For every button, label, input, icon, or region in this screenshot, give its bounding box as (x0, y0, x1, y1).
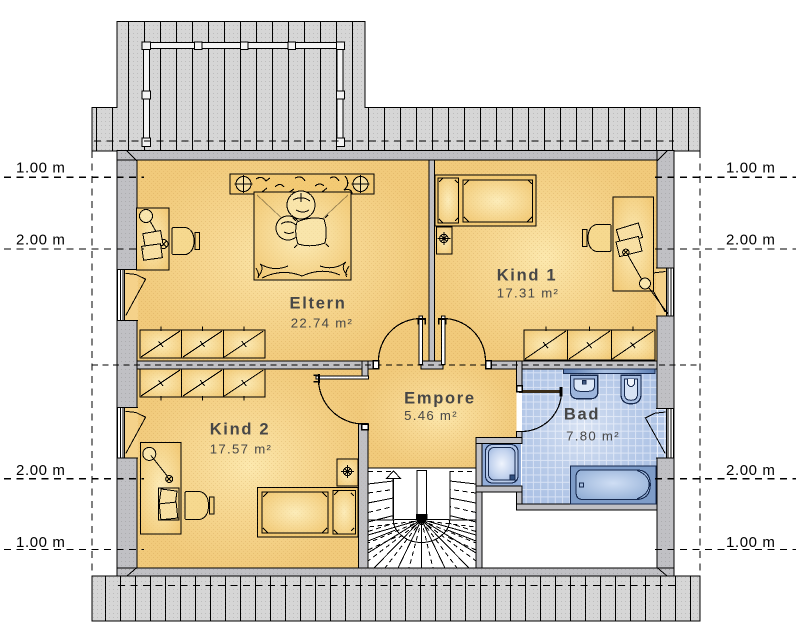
svg-text:1.00 m: 1.00 m (726, 534, 775, 551)
svg-text:17.31 m²: 17.31 m² (497, 286, 559, 301)
svg-text:7.80 m²: 7.80 m² (566, 429, 620, 444)
svg-text:1.00 m: 1.00 m (726, 160, 775, 177)
svg-text:Bad: Bad (564, 406, 600, 424)
svg-text:Eltern: Eltern (290, 295, 347, 313)
svg-text:Empore: Empore (404, 390, 476, 408)
svg-text:Kind 2: Kind 2 (210, 421, 271, 439)
svg-text:5.46 m²: 5.46 m² (404, 408, 458, 423)
svg-text:2.00 m: 2.00 m (16, 462, 65, 479)
svg-text:2.00 m: 2.00 m (16, 232, 65, 249)
svg-text:17.57 m²: 17.57 m² (210, 442, 272, 457)
svg-text:Kind 1: Kind 1 (497, 267, 558, 285)
svg-text:2.00 m: 2.00 m (726, 462, 775, 479)
svg-text:1.00 m: 1.00 m (16, 160, 65, 177)
svg-text:1.00 m: 1.00 m (16, 534, 65, 551)
svg-text:22.74 m²: 22.74 m² (291, 316, 353, 331)
svg-text:2.00 m: 2.00 m (726, 232, 775, 249)
